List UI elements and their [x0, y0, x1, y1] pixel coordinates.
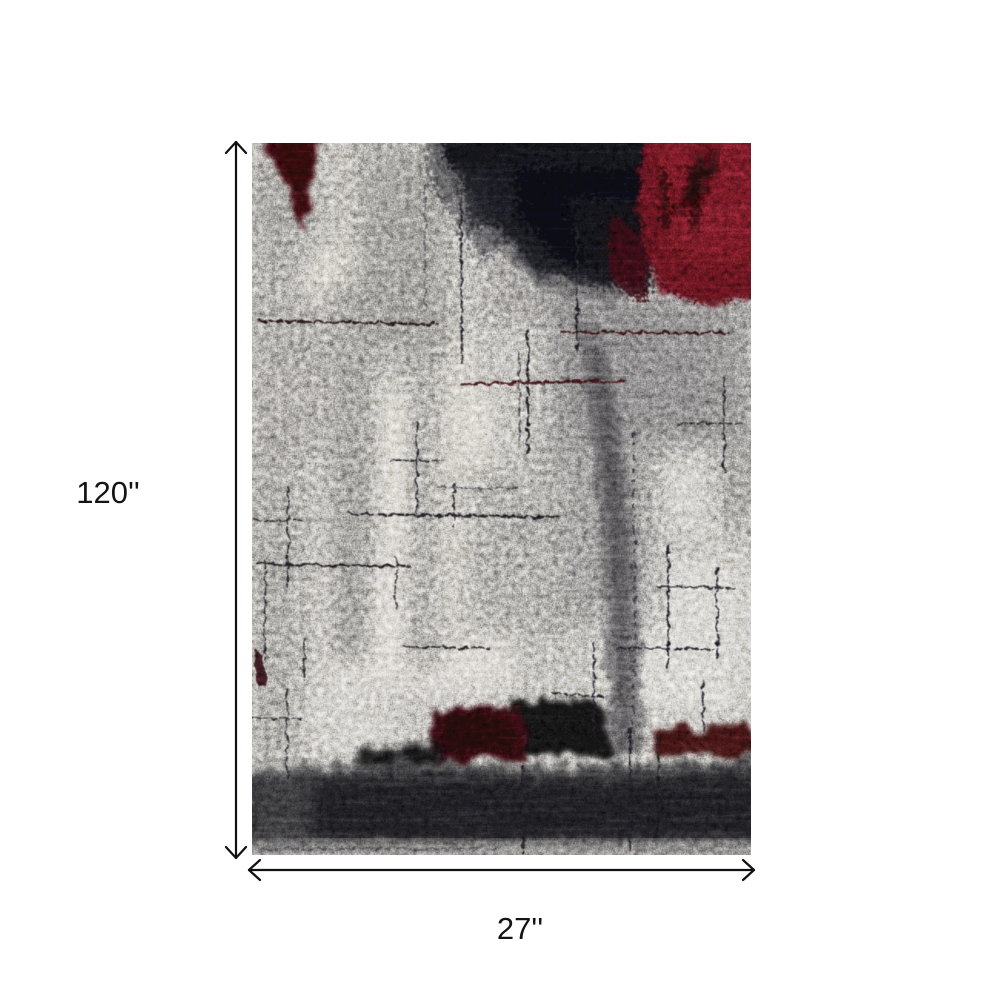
svg-text:27'': 27'' [497, 911, 543, 946]
svg-text:120'': 120'' [76, 475, 140, 510]
